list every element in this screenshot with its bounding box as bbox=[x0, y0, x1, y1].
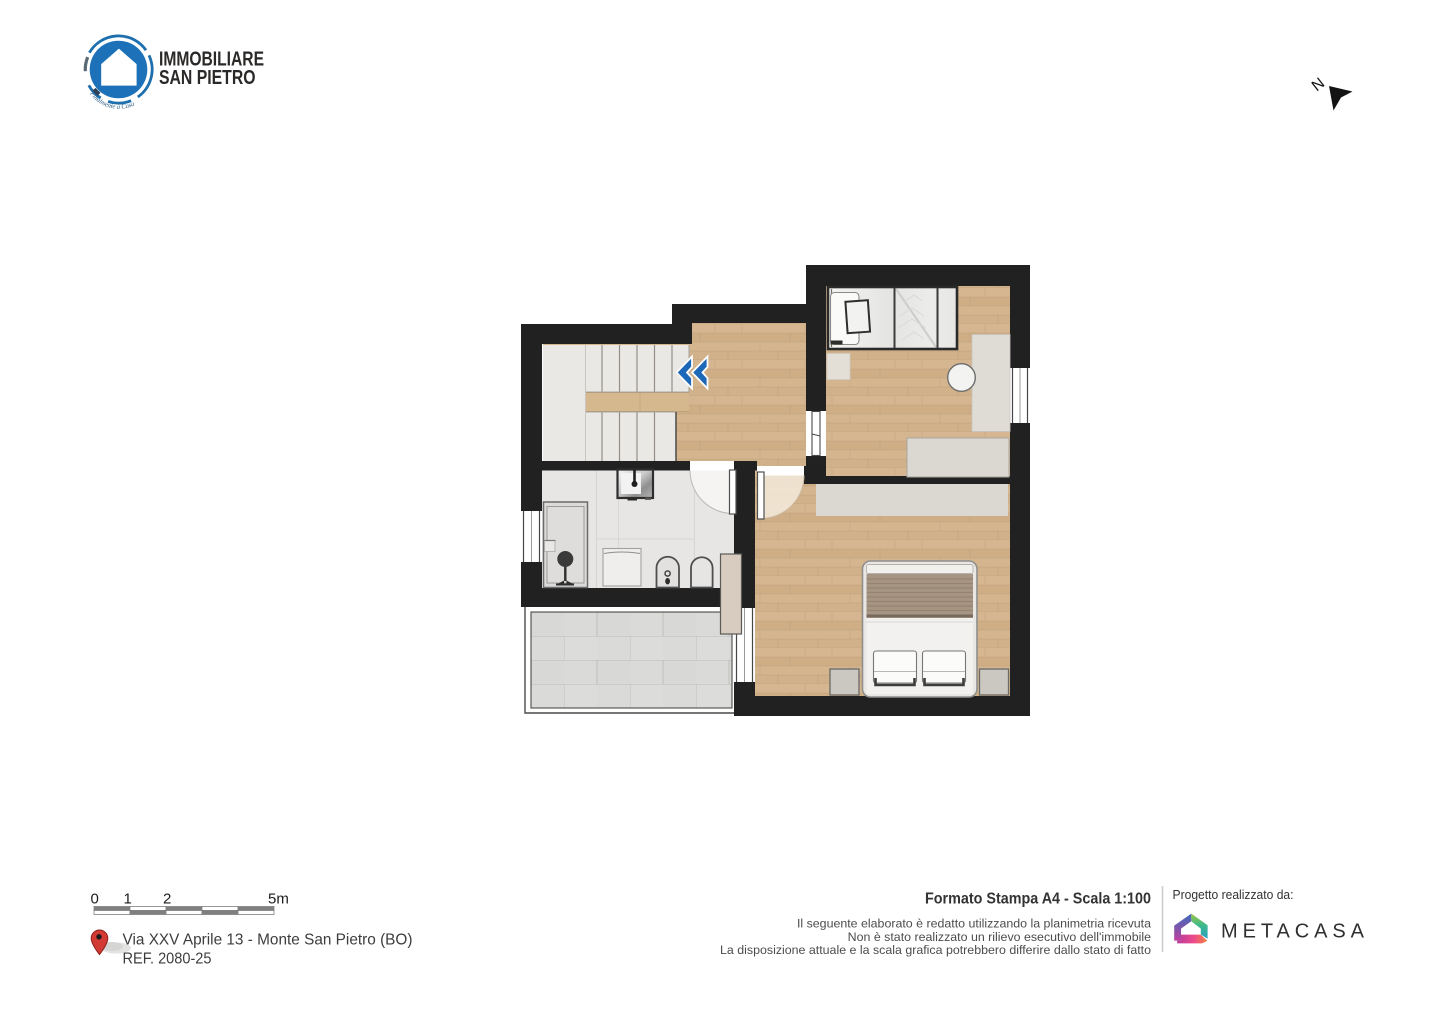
svg-text:Via XXV Aprile 13 - Monte San: Via XXV Aprile 13 - Monte San Pietro (BO… bbox=[123, 932, 413, 949]
svg-text:METACASA: METACASA bbox=[1221, 921, 1369, 943]
svg-text:1: 1 bbox=[124, 891, 132, 908]
svg-text:Non è stato realizzato un rili: Non è stato realizzato un rilievo esecut… bbox=[848, 930, 1151, 944]
svg-text:0: 0 bbox=[91, 891, 99, 908]
svg-text:Formato Stampa A4 - Scala 1:10: Formato Stampa A4 - Scala 1:100 bbox=[925, 891, 1151, 908]
svg-text:REF. 2080-25: REF. 2080-25 bbox=[123, 951, 212, 968]
svg-text:SAN PIETRO: SAN PIETRO bbox=[159, 66, 256, 89]
svg-text:N: N bbox=[1309, 75, 1328, 95]
svg-text:Il seguente elaborato è redatt: Il seguente elaborato è redatto utilizza… bbox=[797, 917, 1151, 931]
svg-text:5m: 5m bbox=[268, 891, 289, 908]
svg-text:2: 2 bbox=[163, 891, 171, 908]
svg-text:La disposizione attuale e la s: La disposizione attuale e la scala grafi… bbox=[720, 943, 1151, 957]
svg-text:Progetto realizzato da:: Progetto realizzato da: bbox=[1173, 887, 1294, 902]
